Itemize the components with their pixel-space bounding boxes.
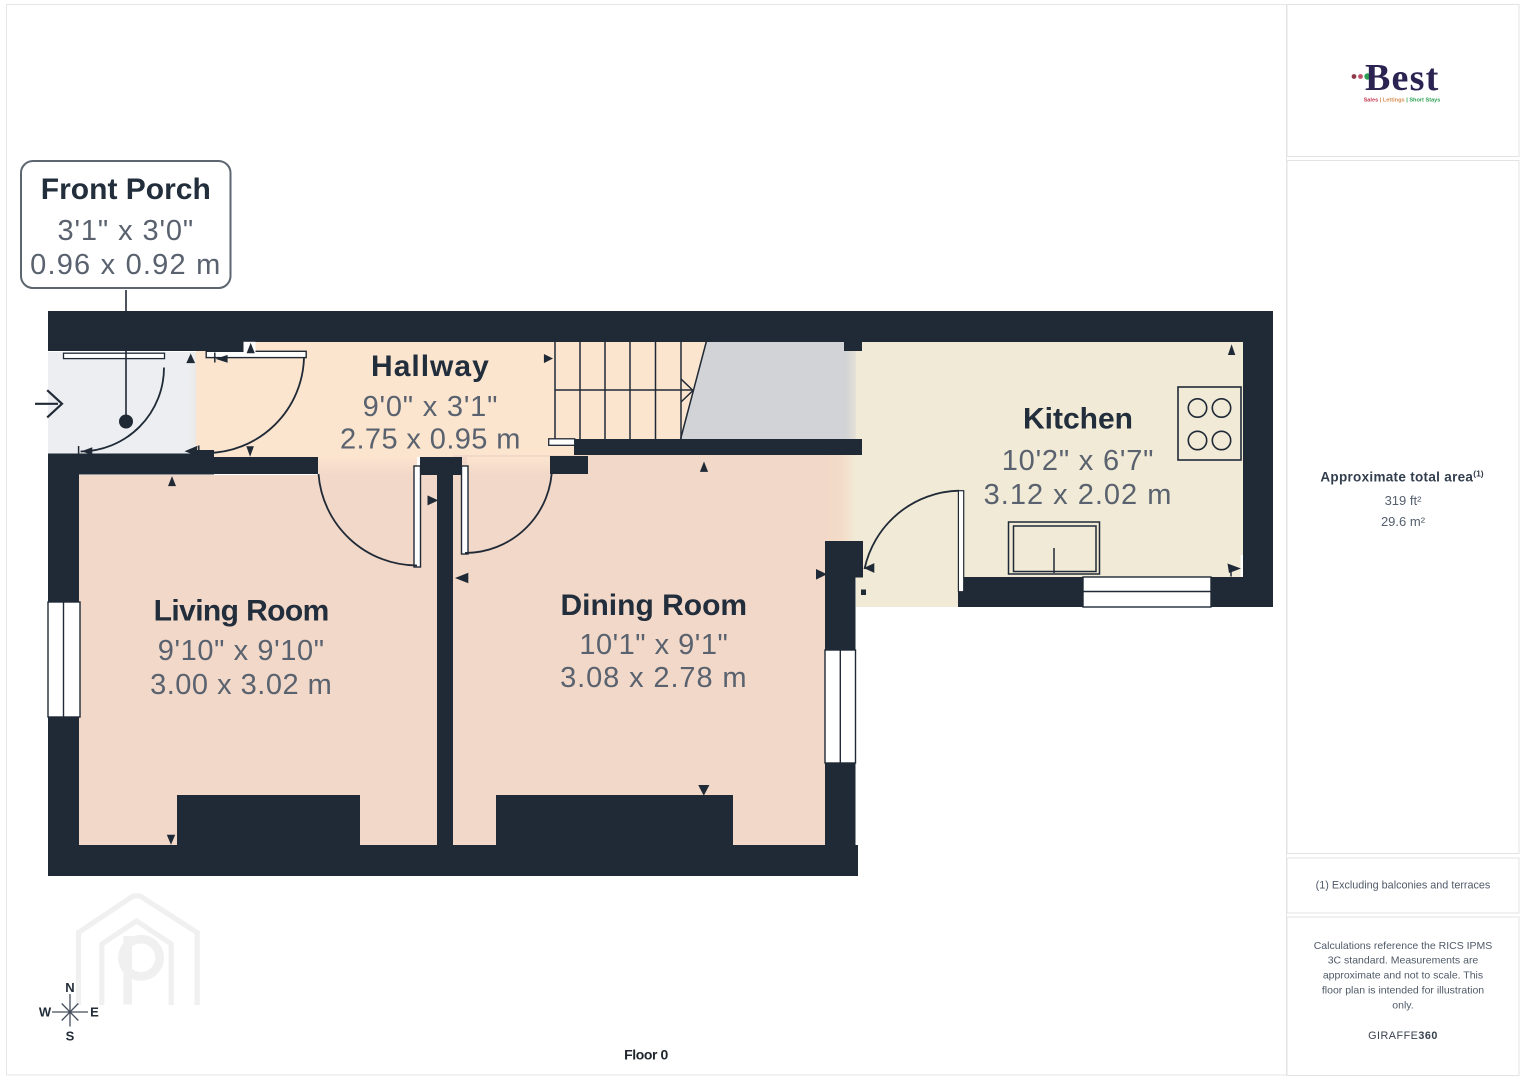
svg-text:Floor 0: Floor 0 xyxy=(624,1046,668,1062)
svg-text:W: W xyxy=(39,1005,52,1020)
svg-text:Calculations reference the RIC: Calculations reference the RICS IPMS xyxy=(1314,940,1493,952)
svg-text:10'2" x 6'7": 10'2" x 6'7" xyxy=(1002,445,1155,477)
svg-text:Hallway: Hallway xyxy=(371,350,490,383)
svg-text:Dining Room: Dining Room xyxy=(560,589,747,622)
svg-text:Kitchen: Kitchen xyxy=(1023,403,1133,436)
svg-text:(1) Excluding balconies and te: (1) Excluding balconies and terraces xyxy=(1316,880,1491,892)
svg-text:S: S xyxy=(66,1029,75,1044)
svg-text:E: E xyxy=(90,1005,99,1020)
svg-text:Best: Best xyxy=(1365,57,1439,99)
svg-text:3.08 x 2.78 m: 3.08 x 2.78 m xyxy=(560,662,747,694)
svg-text:2.75 x 0.95 m: 2.75 x 0.95 m xyxy=(340,424,521,456)
svg-text:10'1" x 9'1": 10'1" x 9'1" xyxy=(579,629,728,661)
svg-text:N: N xyxy=(65,980,74,995)
svg-text:Front Porch: Front Porch xyxy=(41,173,211,206)
svg-text:3.00 x 3.02 m: 3.00 x 3.02 m xyxy=(150,669,332,701)
svg-text:9'0" x 3'1": 9'0" x 3'1" xyxy=(363,391,499,423)
svg-text:approximate and not to scale.: approximate and not to scale. This xyxy=(1323,970,1483,982)
svg-text:GIRAFFE360: GIRAFFE360 xyxy=(1368,1030,1438,1042)
svg-text:floor plan is intended for ill: floor plan is intended for illustration xyxy=(1322,985,1484,997)
svg-text:3'1" x 3'0": 3'1" x 3'0" xyxy=(57,215,194,247)
svg-text:0.96 x 0.92 m: 0.96 x 0.92 m xyxy=(30,249,221,281)
svg-text:9'10" x 9'10": 9'10" x 9'10" xyxy=(158,635,325,667)
svg-text:Living Room: Living Room xyxy=(154,595,329,628)
svg-text:Approximate total area(1): Approximate total area(1) xyxy=(1320,469,1483,485)
svg-text:3.12 x 2.02 m: 3.12 x 2.02 m xyxy=(984,479,1173,511)
svg-text:Sales | Lettings | Short Stays: Sales | Lettings | Short Stays xyxy=(1364,98,1441,104)
svg-text:only.: only. xyxy=(1392,1000,1413,1012)
svg-text:319 ft²: 319 ft² xyxy=(1385,493,1423,508)
svg-text:29.6 m²: 29.6 m² xyxy=(1381,514,1426,529)
svg-text:3C standard. Measurements are: 3C standard. Measurements are xyxy=(1328,955,1479,967)
